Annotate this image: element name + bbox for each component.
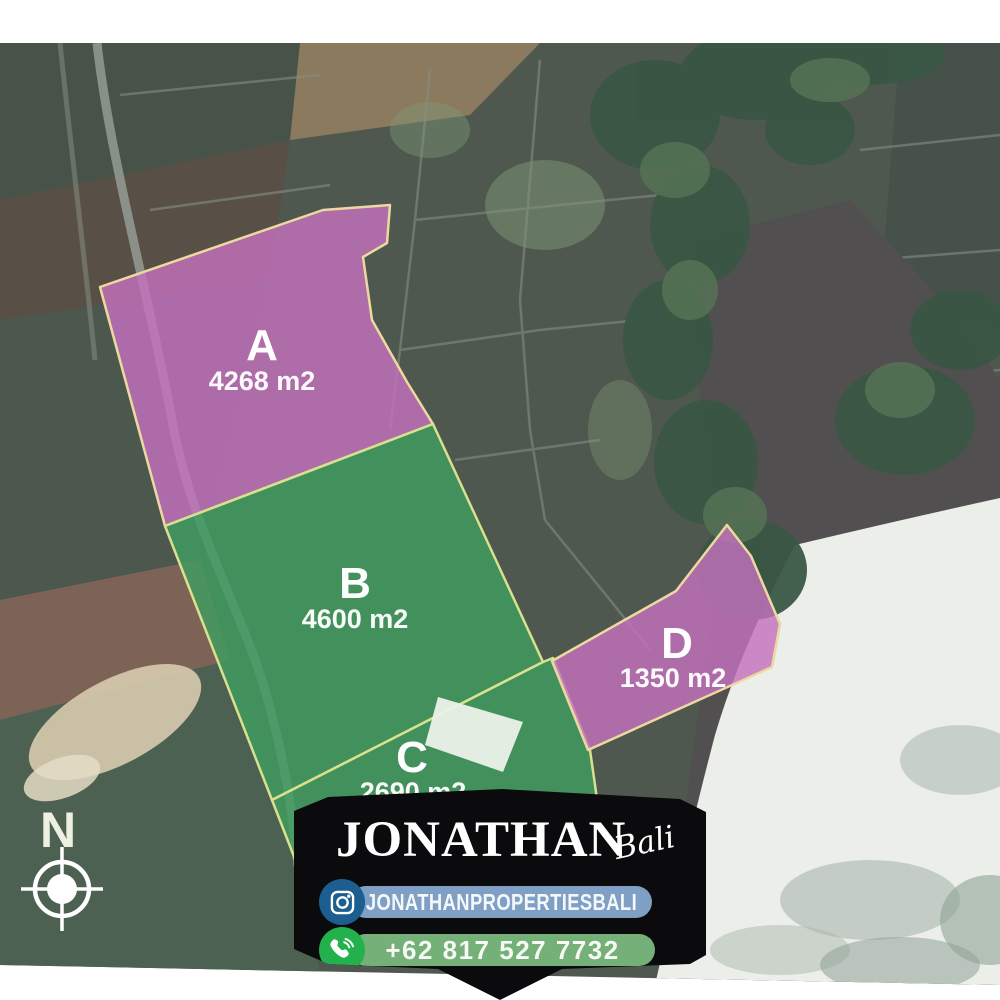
plot-A-area: 4268 m2 xyxy=(209,366,316,396)
instagram-pill: JONATHANPROPERTIESBALI xyxy=(350,886,652,918)
north-label: N xyxy=(40,802,76,858)
plot-A-label: A xyxy=(246,321,278,370)
plot-B-label: B xyxy=(339,559,371,608)
plot-D-label: D xyxy=(661,619,693,668)
instagram-handle: JONATHANPROPERTIESBALI xyxy=(365,889,636,916)
brand-row: JONATHAN Bali xyxy=(292,807,708,871)
phone-pill: +62 817 527 7732 xyxy=(350,934,655,966)
listing-poster: A 4268 m2 B 4600 m2 C 2690 m2 D 1350 m2 … xyxy=(0,0,1000,1000)
phone-number: +62 817 527 7732 xyxy=(385,935,619,966)
plot-B-area: 4600 m2 xyxy=(302,604,409,634)
instagram-row: JONATHANPROPERTIESBALI xyxy=(292,879,708,925)
instagram-icon xyxy=(319,879,365,925)
plot-D-area: 1350 m2 xyxy=(620,663,727,693)
plot-C-label: C xyxy=(396,733,428,782)
brand-name: JONATHAN xyxy=(336,811,620,869)
